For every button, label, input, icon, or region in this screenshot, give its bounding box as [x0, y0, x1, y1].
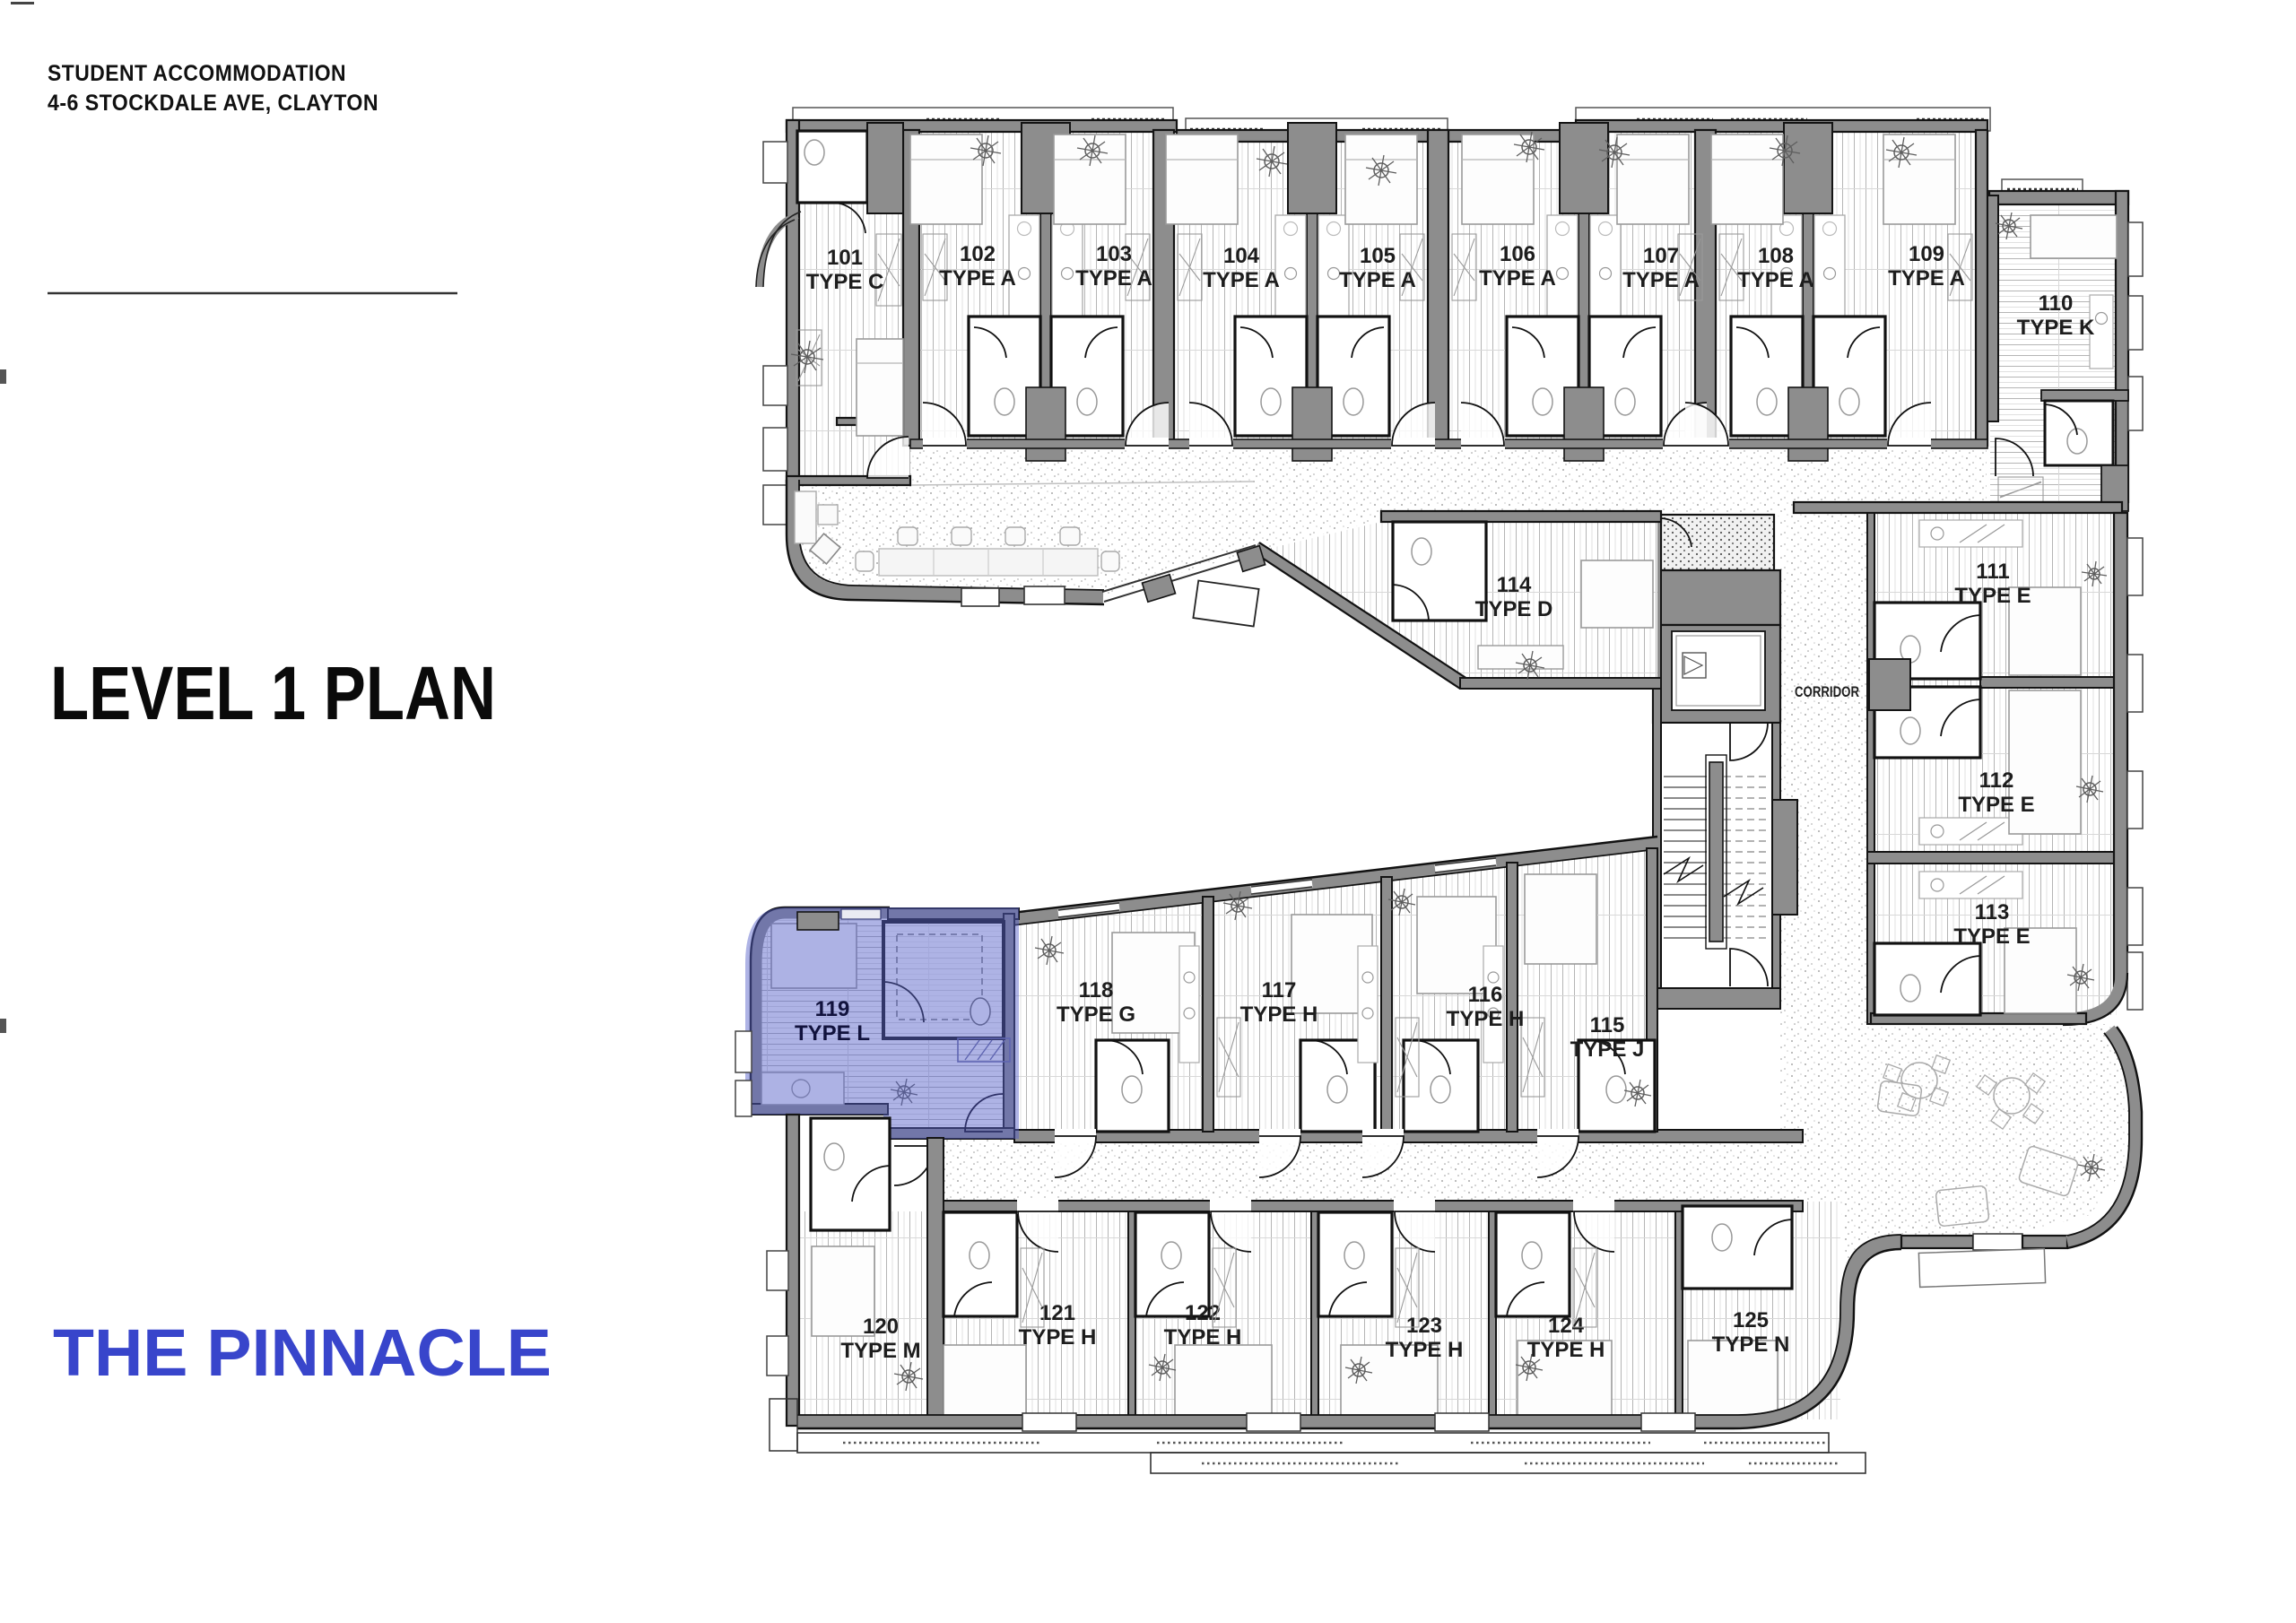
svg-text:TYPE N: TYPE N — [1712, 1332, 1790, 1357]
svg-text:TYPE H: TYPE H — [1386, 1338, 1464, 1362]
svg-text:TYPE A: TYPE A — [1075, 266, 1152, 291]
svg-text:TYPE G: TYPE G — [1057, 1002, 1135, 1027]
svg-text:104: 104 — [1223, 244, 1260, 268]
svg-text:TYPE K: TYPE K — [2017, 316, 2095, 340]
svg-text:TYPE A: TYPE A — [1479, 266, 1556, 291]
svg-text:TYPE A: TYPE A — [1737, 268, 1814, 292]
svg-text:TYPE H: TYPE H — [1447, 1007, 1525, 1031]
svg-text:113: 113 — [1975, 900, 2010, 924]
svg-text:THE PINNACLE: THE PINNACLE — [53, 1315, 552, 1390]
svg-text:121: 121 — [1039, 1301, 1075, 1325]
svg-text:TYPE A: TYPE A — [1203, 268, 1280, 292]
svg-text:TYPE L: TYPE L — [795, 1021, 870, 1046]
svg-text:123: 123 — [1406, 1314, 1442, 1338]
svg-text:TYPE A: TYPE A — [1888, 266, 1965, 291]
svg-text:TYPE A: TYPE A — [939, 266, 1016, 291]
svg-text:112: 112 — [1979, 768, 2014, 793]
svg-text:TYPE H: TYPE H — [1240, 1002, 1318, 1027]
svg-text:109: 109 — [1909, 242, 1944, 266]
svg-text:TYPE M: TYPE M — [840, 1339, 920, 1363]
svg-text:101: 101 — [827, 246, 863, 270]
svg-text:102: 102 — [960, 242, 996, 266]
svg-text:TYPE H: TYPE H — [1164, 1325, 1242, 1350]
svg-text:4-6 STOCKDALE AVE, CLAYTON: 4-6 STOCKDALE AVE, CLAYTON — [48, 91, 378, 116]
svg-text:122: 122 — [1185, 1301, 1221, 1325]
svg-text:106: 106 — [1500, 242, 1535, 266]
svg-text:124: 124 — [1548, 1314, 1585, 1338]
svg-text:125: 125 — [1733, 1308, 1769, 1332]
svg-text:118: 118 — [1079, 978, 1114, 1002]
svg-text:LEVEL 1 PLAN: LEVEL 1 PLAN — [50, 651, 496, 735]
svg-text:TYPE E: TYPE E — [1958, 793, 2034, 817]
svg-text:TYPE A: TYPE A — [1339, 268, 1416, 292]
svg-text:117: 117 — [1262, 978, 1297, 1002]
svg-text:108: 108 — [1758, 244, 1794, 268]
svg-text:TYPE A: TYPE A — [1622, 268, 1700, 292]
svg-text:114: 114 — [1497, 573, 1532, 597]
svg-text:TYPE E: TYPE E — [1953, 924, 2030, 949]
svg-text:105: 105 — [1360, 244, 1396, 268]
svg-text:103: 103 — [1096, 242, 1132, 266]
svg-text:TYPE H: TYPE H — [1527, 1338, 1605, 1362]
svg-text:CORRIDOR: CORRIDOR — [1795, 683, 1859, 700]
svg-text:120: 120 — [863, 1315, 899, 1339]
svg-text:107: 107 — [1643, 244, 1679, 268]
svg-text:STUDENT ACCOMMODATION: STUDENT ACCOMMODATION — [48, 61, 346, 86]
svg-text:111: 111 — [1976, 560, 2009, 584]
svg-text:115: 115 — [1590, 1013, 1625, 1037]
svg-text:116: 116 — [1468, 983, 1503, 1007]
svg-text:TYPE D: TYPE D — [1475, 597, 1553, 621]
svg-text:110: 110 — [2039, 291, 2074, 316]
svg-text:TYPE C: TYPE C — [806, 270, 884, 294]
svg-text:119: 119 — [815, 997, 850, 1021]
svg-text:TYPE H: TYPE H — [1019, 1325, 1097, 1350]
svg-text:TYPE E: TYPE E — [1954, 584, 2031, 608]
svg-text:TYPE J: TYPE J — [1570, 1037, 1645, 1062]
